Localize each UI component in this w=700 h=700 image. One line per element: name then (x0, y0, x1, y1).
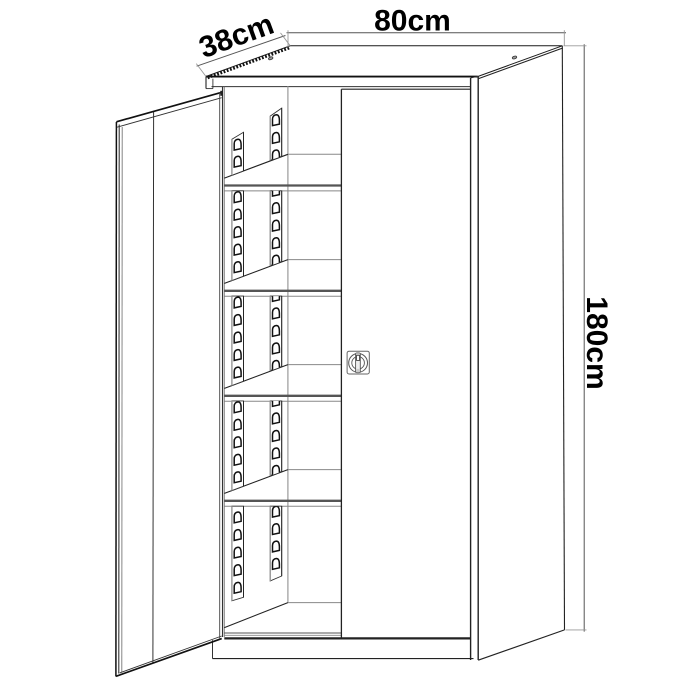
svg-text:80cm: 80cm (374, 5, 451, 38)
svg-text:180cm: 180cm (580, 296, 613, 389)
